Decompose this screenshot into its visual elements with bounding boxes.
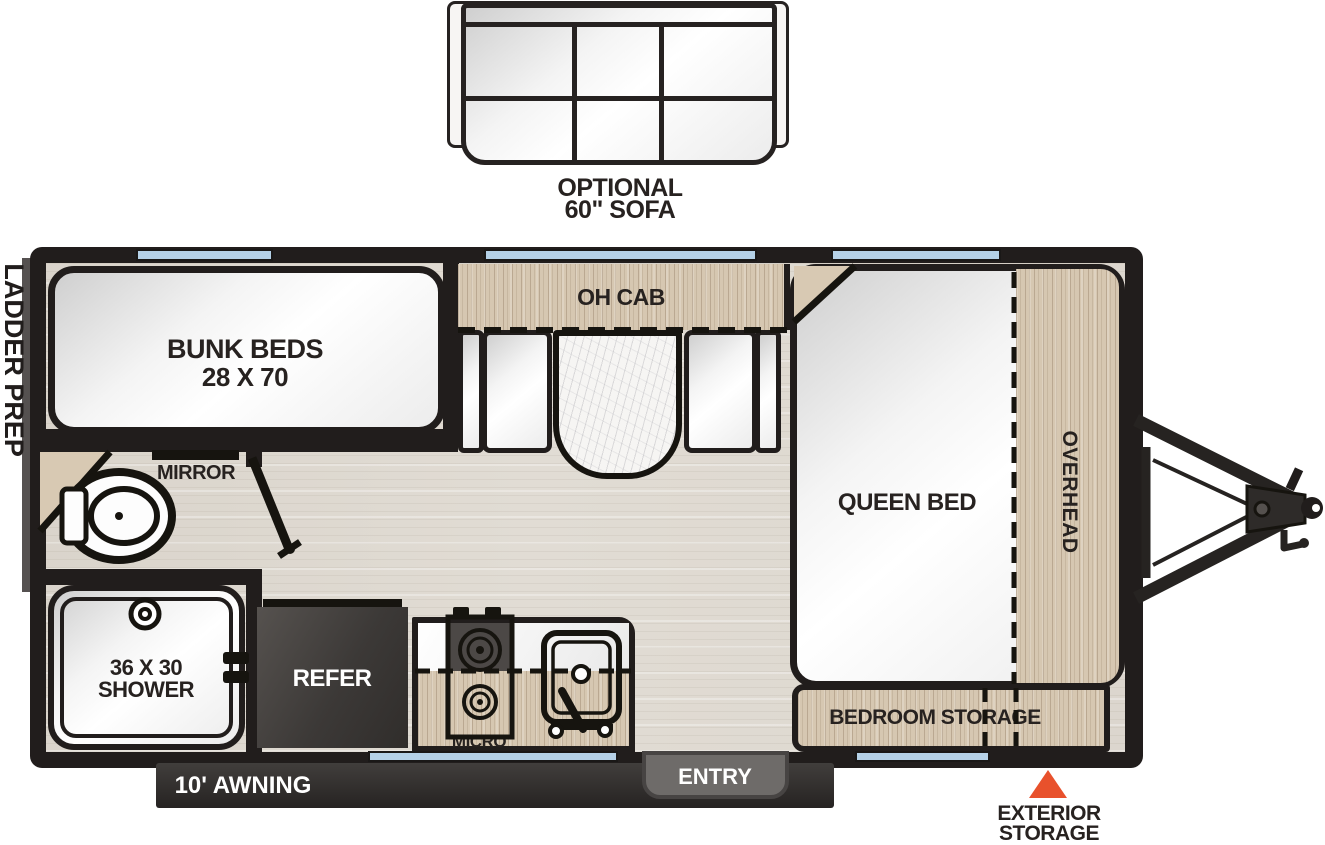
exterior-storage-marker — [1029, 770, 1067, 798]
toilet-icon — [62, 472, 172, 560]
dashed-cabinet-lines — [415, 272, 1016, 748]
shower-door-hinges — [223, 652, 249, 683]
shower-head-icon — [131, 600, 159, 628]
bed-corner-wedge — [794, 266, 855, 322]
fixtures-overlay — [0, 0, 1325, 845]
bathroom-door — [252, 458, 300, 556]
floorplan: OPTIONAL 60" SOFA BUNK BEDS 28 X 70 MIRR… — [0, 0, 1325, 845]
hitch — [1136, 420, 1323, 598]
cooktop-icon — [448, 607, 512, 737]
sink-icon — [544, 633, 619, 737]
